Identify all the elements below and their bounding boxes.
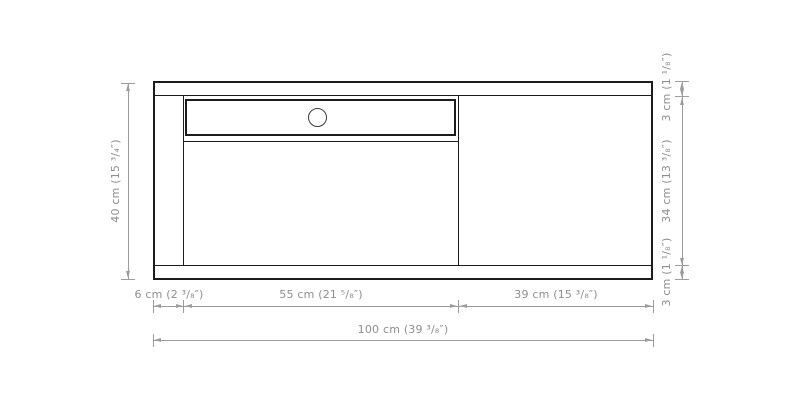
dim-right-tick-2 xyxy=(675,96,689,97)
dim-right-line xyxy=(682,81,683,280)
dim-total-width-tick-right xyxy=(653,334,654,347)
dim-arrow xyxy=(680,258,684,265)
dim-arrow xyxy=(680,82,684,89)
dim-arrow xyxy=(460,304,467,308)
dim-bottom-seg-line xyxy=(153,306,654,307)
dim-arrow xyxy=(645,338,652,342)
drawer-bottom-reveal-line xyxy=(184,141,458,142)
dim-label-bottom-right: 39 cm (15 ³/₈″) xyxy=(514,289,597,301)
dim-label-right-middle: 34 cm (13 ³/₈″) xyxy=(661,139,673,222)
dim-bottom-tick-4 xyxy=(653,300,654,313)
dim-arrow xyxy=(645,304,652,308)
dim-label-bottom-left: 6 cm (2 ³/₈″) xyxy=(134,289,203,301)
dim-left-line xyxy=(128,83,129,279)
dim-bottom-tick-3 xyxy=(458,300,459,313)
dim-right-tick-4 xyxy=(675,279,689,280)
dim-left-tick-bottom xyxy=(121,279,135,280)
dim-label-total-width: 100 cm (39 ³/₈″) xyxy=(358,324,449,336)
dim-label-right-top: 3 cm (1 ¹/₈″) xyxy=(661,52,673,121)
dim-bottom-tick-2 xyxy=(183,300,184,313)
cabinet-left-partition-line xyxy=(183,96,184,265)
cabinet-top-panel-line xyxy=(155,95,651,96)
dim-arrow xyxy=(154,338,161,342)
drawer-knob-icon xyxy=(308,108,327,127)
dim-arrow xyxy=(185,304,192,308)
dim-label-right-bottom: 3 cm (1 ¹/₈″) xyxy=(661,237,673,306)
dim-label-total-height: 40 cm (15 ³/₄″) xyxy=(110,139,122,222)
technical-drawing-canvas: 40 cm (15 ³/₄″) 6 cm (2 ³/₈″) 55 cm (21 … xyxy=(0,0,794,405)
dim-arrow xyxy=(680,89,684,96)
dim-arrow xyxy=(450,304,457,308)
dim-total-width-line xyxy=(153,340,654,341)
cabinet-right-divider-line xyxy=(458,96,459,265)
cabinet-bottom-panel-line xyxy=(155,265,651,266)
dim-arrow xyxy=(154,304,161,308)
dim-left-arrow-down xyxy=(126,271,130,278)
dim-arrow xyxy=(680,98,684,105)
dim-label-bottom-middle: 55 cm (21 ⁵/₈″) xyxy=(279,289,362,301)
dim-arrow xyxy=(680,272,684,279)
dim-arrow xyxy=(176,304,183,308)
dim-left-arrow-up xyxy=(126,84,130,91)
